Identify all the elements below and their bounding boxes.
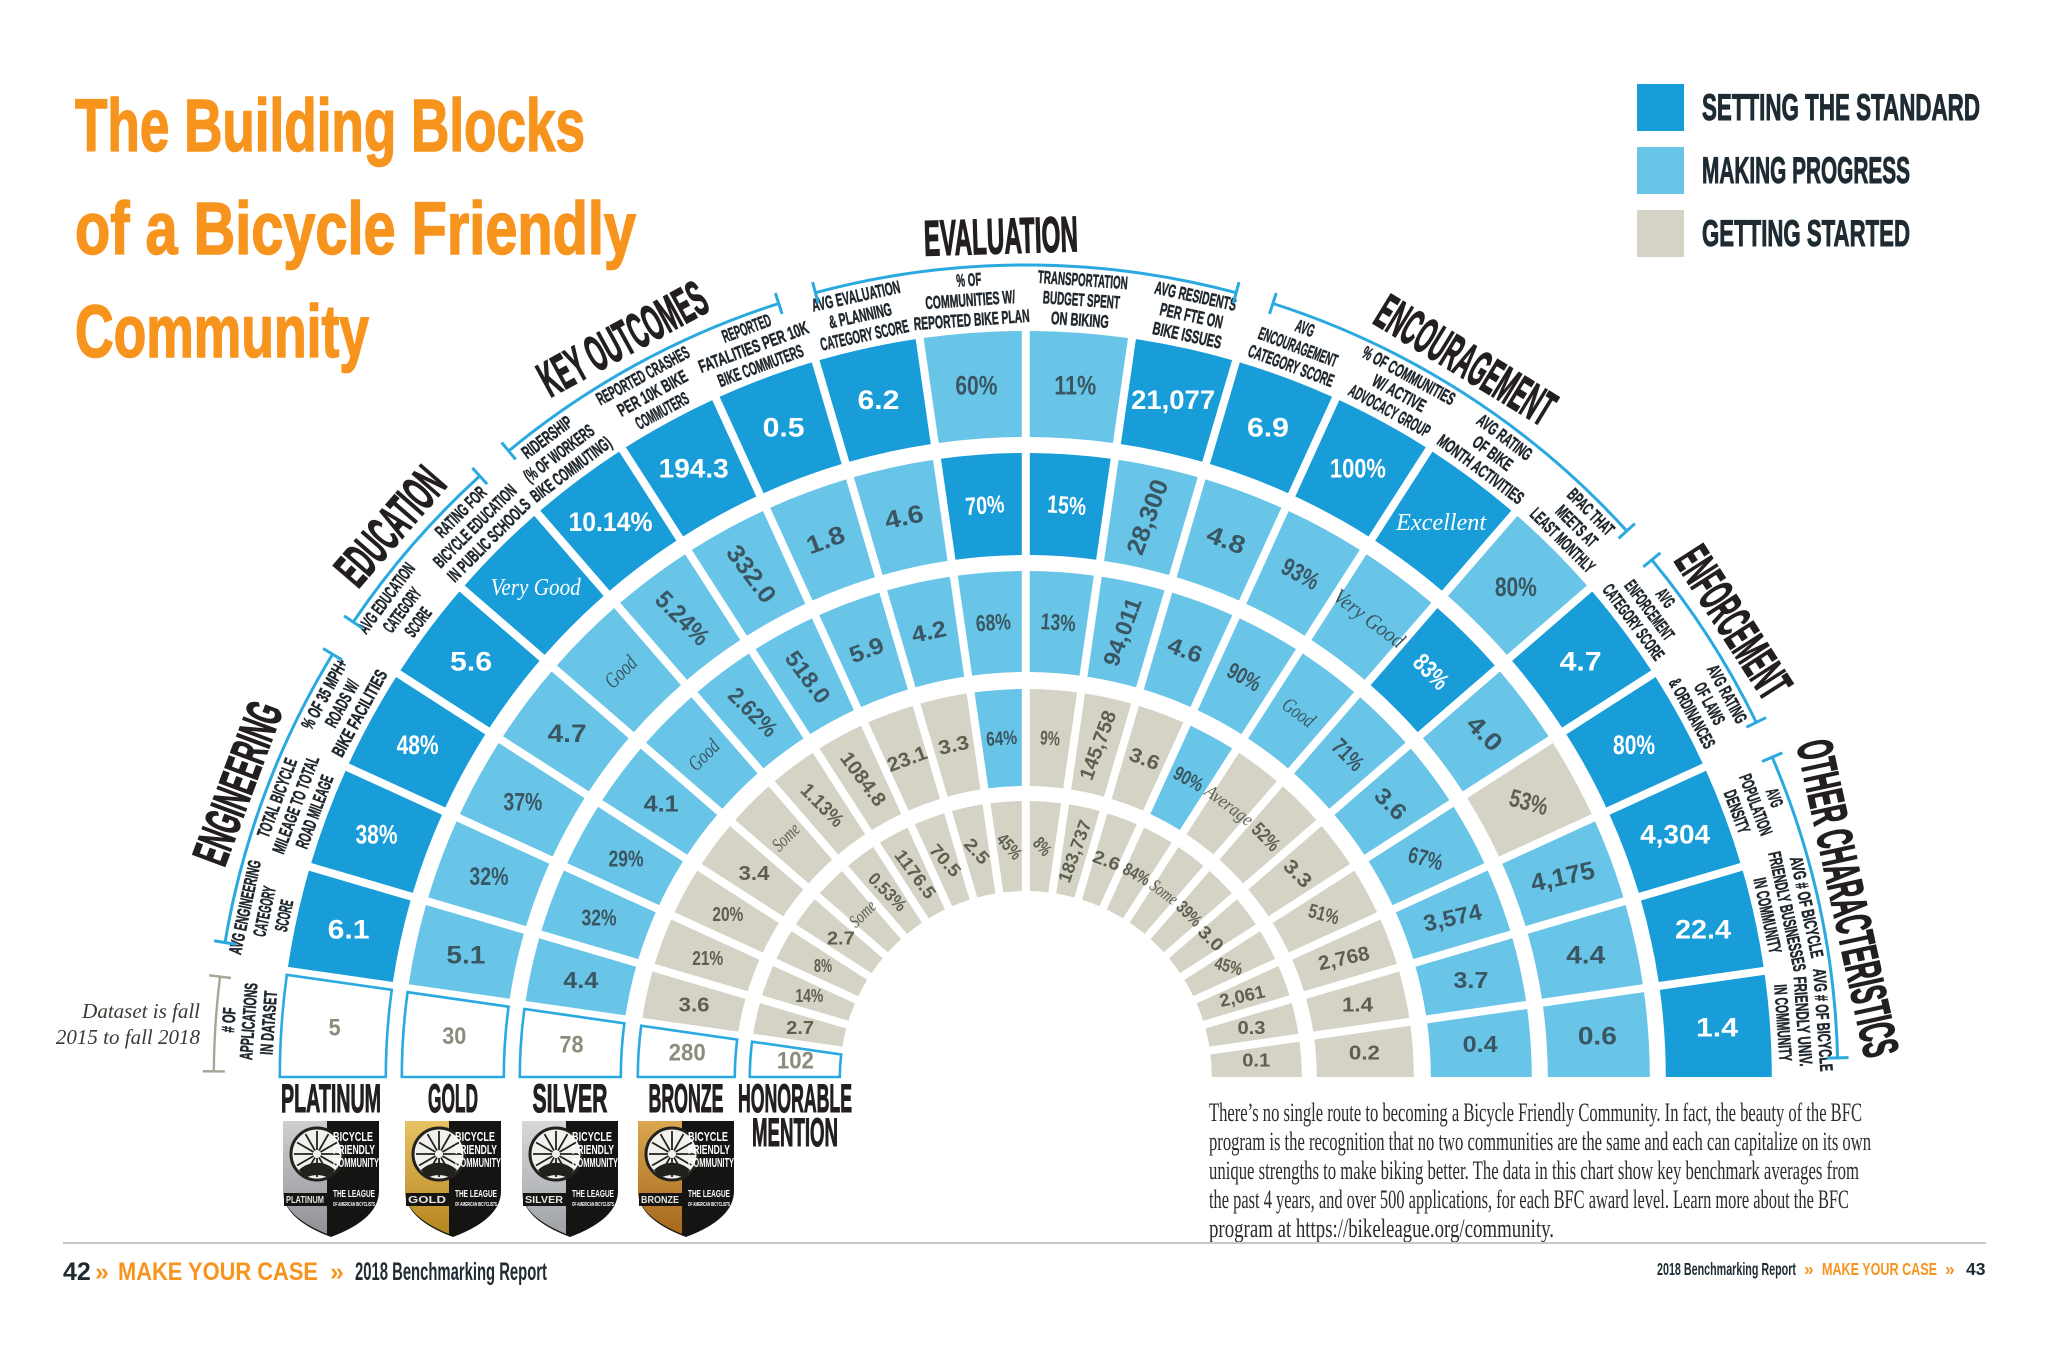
svg-text:FRIENDLY: FRIENDLY [333, 1143, 375, 1157]
svg-text:THE LEAGUE: THE LEAGUE [333, 1189, 375, 1200]
svg-text:program is the recognition tha: program is the recognition that no two c… [1209, 1127, 1871, 1156]
svg-text:48%: 48% [397, 730, 439, 760]
svg-text:21,077: 21,077 [1131, 385, 1215, 415]
svg-text:COMMUNITY: COMMUNITY [688, 1156, 734, 1170]
svg-text:2.7: 2.7 [786, 1018, 814, 1038]
svg-text:1.4: 1.4 [1342, 994, 1374, 1016]
svg-text:»: » [330, 1258, 344, 1286]
svg-text:BICYCLE: BICYCLE [455, 1130, 495, 1144]
svg-text:11%: 11% [1054, 371, 1096, 401]
svg-text:32%: 32% [582, 904, 617, 930]
svg-text:OF AMERICAN BICYCLISTS: OF AMERICAN BICYCLISTS [333, 1202, 375, 1208]
svg-text:4.4: 4.4 [1566, 941, 1605, 969]
svg-text:% OF: % OF [956, 269, 982, 291]
svg-text:100%: 100% [1330, 454, 1386, 484]
svg-text:COMMUNITY: COMMUNITY [333, 1156, 379, 1170]
svg-text:20%: 20% [712, 904, 743, 926]
svg-text:EVALUATION: EVALUATION [923, 206, 1079, 267]
svg-text:80%: 80% [1613, 730, 1655, 760]
svg-text:BICYCLE: BICYCLE [333, 1130, 373, 1144]
svg-text:60%: 60% [955, 371, 997, 401]
svg-text:0.1: 0.1 [1242, 1050, 1270, 1070]
svg-text:SILVER: SILVER [525, 1195, 564, 1206]
svg-text:MAKING PROGRESS: MAKING PROGRESS [1702, 150, 1910, 191]
svg-text:38%: 38% [355, 820, 397, 850]
svg-text:22.4: 22.4 [1675, 915, 1731, 945]
svg-text:MAKE YOUR CASE: MAKE YOUR CASE [118, 1258, 318, 1286]
svg-text:THE LEAGUE: THE LEAGUE [572, 1189, 614, 1200]
svg-text:THE LEAGUE: THE LEAGUE [455, 1189, 497, 1200]
svg-text:4.1: 4.1 [644, 791, 679, 817]
svg-text:COMMUNITY: COMMUNITY [455, 1156, 501, 1170]
svg-text:3.6: 3.6 [679, 994, 710, 1016]
svg-text:29%: 29% [609, 845, 644, 871]
svg-text:37%: 37% [503, 789, 542, 817]
svg-text:GOLD: GOLD [408, 1195, 446, 1206]
svg-text:SETTING THE STANDARD: SETTING THE STANDARD [1702, 87, 1980, 128]
svg-text:»: » [95, 1258, 109, 1286]
svg-text:OF AMERICAN BICYCLISTS: OF AMERICAN BICYCLISTS [688, 1202, 730, 1208]
svg-text:3.7: 3.7 [1453, 967, 1488, 993]
svg-text:3.4: 3.4 [739, 863, 771, 885]
svg-text:0.2: 0.2 [1349, 1042, 1380, 1064]
svg-text:# OF: # OF [218, 1007, 240, 1033]
svg-text:0.6: 0.6 [1578, 1022, 1617, 1050]
svg-text:78: 78 [559, 1031, 583, 1058]
svg-text:68%: 68% [975, 608, 1012, 636]
svg-text:10.14%: 10.14% [569, 507, 653, 537]
svg-text:6.1: 6.1 [328, 915, 370, 945]
svg-text:of a Bicycle Friendly: of a Bicycle Friendly [75, 187, 636, 270]
svg-text:Dataset is fall: Dataset is fall [81, 999, 200, 1023]
svg-text:42: 42 [63, 1258, 91, 1286]
svg-text:FRIENDLY: FRIENDLY [572, 1143, 614, 1157]
svg-text:MAKE YOUR CASE: MAKE YOUR CASE [1822, 1259, 1937, 1279]
svg-text:5.6: 5.6 [450, 647, 492, 677]
svg-text:32%: 32% [469, 863, 508, 891]
svg-text:4.7: 4.7 [1560, 647, 1602, 677]
svg-text:FRIENDLY: FRIENDLY [455, 1143, 497, 1157]
svg-text:15%: 15% [1046, 490, 1087, 521]
svg-text:21%: 21% [692, 948, 723, 970]
svg-text:program at https://bikeleague.: program at https://bikeleague.org/commun… [1209, 1214, 1554, 1243]
svg-text:0.3: 0.3 [1238, 1018, 1266, 1038]
svg-text:Community: Community [75, 290, 369, 373]
svg-text:the past 4 years, and over 500: the past 4 years, and over 500 applicati… [1209, 1185, 1849, 1214]
svg-text:13%: 13% [1040, 608, 1077, 636]
svg-text:ON BIKING: ON BIKING [1050, 308, 1109, 332]
svg-text:Excellent: Excellent [1395, 510, 1487, 536]
svg-text:6.9: 6.9 [1247, 413, 1289, 443]
svg-text:The Building Blocks: The Building Blocks [75, 84, 585, 167]
svg-text:1.4: 1.4 [1696, 1012, 1738, 1042]
svg-text:43: 43 [1966, 1259, 1986, 1279]
svg-text:4,304: 4,304 [1640, 820, 1710, 850]
svg-text:80%: 80% [1495, 572, 1537, 602]
svg-text:4.4: 4.4 [563, 967, 598, 993]
svg-text:PLATINUM: PLATINUM [281, 1077, 381, 1121]
svg-text:194.3: 194.3 [659, 454, 729, 484]
svg-text:GETTING STARTED: GETTING STARTED [1702, 213, 1910, 254]
svg-text:8%: 8% [814, 956, 832, 976]
svg-text:5: 5 [329, 1014, 341, 1041]
svg-text:COMMUNITY: COMMUNITY [572, 1156, 618, 1170]
svg-text:0.4: 0.4 [1463, 1031, 1498, 1057]
svg-text:0.5: 0.5 [763, 413, 805, 443]
svg-text:5.1: 5.1 [446, 941, 485, 969]
svg-text:THE LEAGUE: THE LEAGUE [688, 1189, 730, 1200]
svg-text:30: 30 [442, 1023, 466, 1050]
svg-text:PLATINUM: PLATINUM [286, 1195, 324, 1206]
svg-text:9%: 9% [1039, 727, 1061, 750]
svg-text:70%: 70% [964, 490, 1005, 521]
svg-text:2018 Benchmarking Report: 2018 Benchmarking Report [1657, 1259, 1796, 1279]
svg-text:GOLD: GOLD [428, 1077, 478, 1121]
svg-text:BICYCLE: BICYCLE [572, 1130, 612, 1144]
svg-text:6.2: 6.2 [857, 385, 899, 415]
svg-text:OF AMERICAN BICYCLISTS: OF AMERICAN BICYCLISTS [455, 1202, 497, 1208]
svg-text:unique strengths to make bikin: unique strengths to make biking better. … [1209, 1156, 1859, 1185]
svg-text:Very Good: Very Good [491, 575, 582, 601]
svg-text:BRONZE: BRONZE [641, 1195, 679, 1206]
svg-text:BRONZE: BRONZE [649, 1077, 724, 1121]
svg-text:»: » [1804, 1259, 1814, 1279]
svg-text:BICYCLE: BICYCLE [688, 1130, 728, 1144]
svg-text:280: 280 [669, 1040, 706, 1067]
svg-text:64%: 64% [985, 727, 1018, 751]
svg-text:102: 102 [777, 1047, 814, 1074]
svg-text:2015 to fall 2018: 2015 to fall 2018 [56, 1025, 201, 1049]
svg-text:There’s no single route to bec: There’s no single route to becoming a Bi… [1209, 1098, 1862, 1127]
svg-text:2.7: 2.7 [827, 929, 855, 949]
svg-text:SILVER: SILVER [533, 1077, 608, 1121]
svg-text:2018 Benchmarking Report: 2018 Benchmarking Report [355, 1258, 547, 1286]
svg-text:FRIENDLY: FRIENDLY [688, 1143, 730, 1157]
svg-text:»: » [1945, 1259, 1955, 1279]
svg-text:MENTION: MENTION [752, 1111, 838, 1155]
svg-text:4.7: 4.7 [548, 720, 587, 748]
svg-text:14%: 14% [795, 986, 823, 1006]
svg-text:OF AMERICAN BICYCLISTS: OF AMERICAN BICYCLISTS [572, 1202, 614, 1208]
